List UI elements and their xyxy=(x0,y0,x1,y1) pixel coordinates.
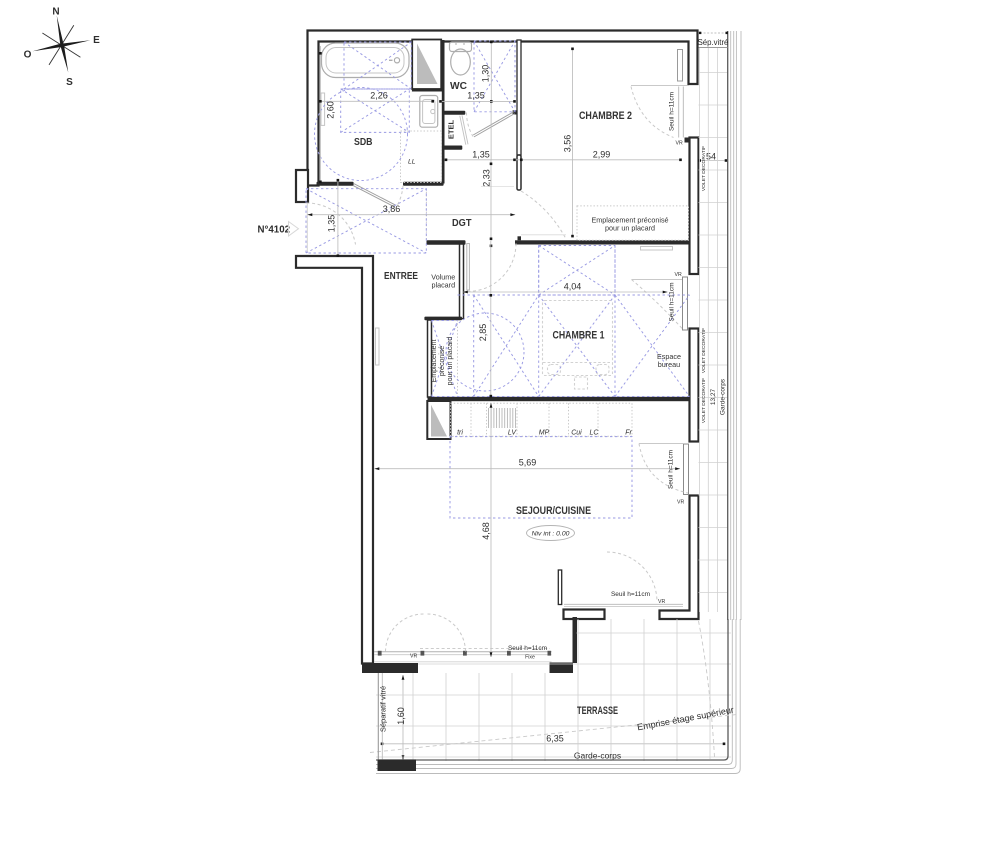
svg-text:SEJOUR/CUISINE: SEJOUR/CUISINE xyxy=(516,505,591,517)
svg-text:1,35: 1,35 xyxy=(467,91,485,101)
svg-text:VOLET DECORATIF: VOLET DECORATIF xyxy=(701,146,707,191)
svg-text:3,86: 3,86 xyxy=(383,204,401,214)
svg-text:DGT: DGT xyxy=(452,217,472,229)
svg-text:ETEL: ETEL xyxy=(447,119,456,139)
svg-text:Seuil h=11cm: Seuil h=11cm xyxy=(669,92,676,131)
svg-text:2,33: 2,33 xyxy=(482,169,492,187)
svg-text:E: E xyxy=(93,35,100,46)
svg-text:13,27: 13,27 xyxy=(710,388,717,405)
svg-text:Seuil h=11cm: Seuil h=11cm xyxy=(668,450,675,489)
svg-text:Seuil h=11cm: Seuil h=11cm xyxy=(611,591,650,598)
svg-text:VOLET DECORATIF: VOLET DECORATIF xyxy=(701,328,707,373)
svg-text:TERRASSE: TERRASSE xyxy=(577,705,618,717)
svg-text:N: N xyxy=(52,7,59,18)
svg-text:2,60: 2,60 xyxy=(326,101,336,119)
svg-text:WC: WC xyxy=(450,80,467,92)
svg-text:LC: LC xyxy=(590,430,600,437)
svg-text:4,68: 4,68 xyxy=(481,522,491,540)
svg-text:Niv int : 0.00: Niv int : 0.00 xyxy=(532,531,570,538)
svg-text:placard: placard xyxy=(432,281,456,290)
svg-text:bureau: bureau xyxy=(658,360,680,369)
svg-text:3,56: 3,56 xyxy=(563,135,573,153)
svg-text:CHAMBRE 2: CHAMBRE 2 xyxy=(579,110,632,122)
svg-text:1,35: 1,35 xyxy=(327,215,337,233)
svg-text:MP: MP xyxy=(539,430,550,437)
svg-text:CHAMBRE 1: CHAMBRE 1 xyxy=(553,330,605,342)
svg-text:Garde-corps: Garde-corps xyxy=(720,378,727,415)
svg-text:S: S xyxy=(66,77,73,88)
svg-text:Fixe: Fixe xyxy=(525,655,535,661)
svg-text:pour un placard: pour un placard xyxy=(605,224,655,233)
svg-text:préconisé: préconisé xyxy=(439,346,446,376)
svg-text:VR: VR xyxy=(675,272,682,278)
svg-text:VR: VR xyxy=(676,141,683,147)
svg-text:2,99: 2,99 xyxy=(593,149,611,159)
svg-text:Séparatif vitré: Séparatif vitré xyxy=(379,686,388,732)
svg-text:O: O xyxy=(24,50,32,61)
svg-text:SDB: SDB xyxy=(354,136,373,148)
svg-text:1,60: 1,60 xyxy=(396,707,406,725)
svg-text:54: 54 xyxy=(706,152,716,162)
svg-text:VOLET DECORATIF: VOLET DECORATIF xyxy=(701,378,707,423)
svg-text:2,26: 2,26 xyxy=(370,91,388,101)
svg-text:4,04: 4,04 xyxy=(564,282,582,292)
svg-text:Emprise étage supérieur: Emprise étage supérieur xyxy=(636,705,734,733)
svg-text:tri: tri xyxy=(457,430,463,437)
svg-text:2,85: 2,85 xyxy=(478,324,488,342)
svg-text:N°4102: N°4102 xyxy=(258,224,291,236)
svg-text:VR: VR xyxy=(677,500,684,506)
svg-text:pour un placard: pour un placard xyxy=(447,337,454,386)
svg-text:Garde-corps: Garde-corps xyxy=(574,751,621,761)
svg-text:Fr: Fr xyxy=(625,430,632,437)
svg-text:VR: VR xyxy=(658,599,665,605)
svg-text:1,30: 1,30 xyxy=(481,65,491,83)
svg-text:1,35: 1,35 xyxy=(472,149,490,159)
svg-text:Sép.vitré: Sép.vitré xyxy=(698,38,729,47)
svg-text:Seuil h=11cm: Seuil h=11cm xyxy=(508,645,547,652)
svg-text:VR: VR xyxy=(410,654,417,660)
svg-text:Seuil h=11cm: Seuil h=11cm xyxy=(669,282,676,321)
svg-text:6,35: 6,35 xyxy=(546,733,564,743)
svg-text:5,69: 5,69 xyxy=(519,457,537,467)
svg-text:ENTREE: ENTREE xyxy=(384,270,418,282)
svg-text:LV: LV xyxy=(508,430,518,437)
svg-text:Emplacement: Emplacement xyxy=(431,340,438,383)
svg-text:LL: LL xyxy=(408,159,416,166)
svg-text:Cui: Cui xyxy=(571,430,582,437)
